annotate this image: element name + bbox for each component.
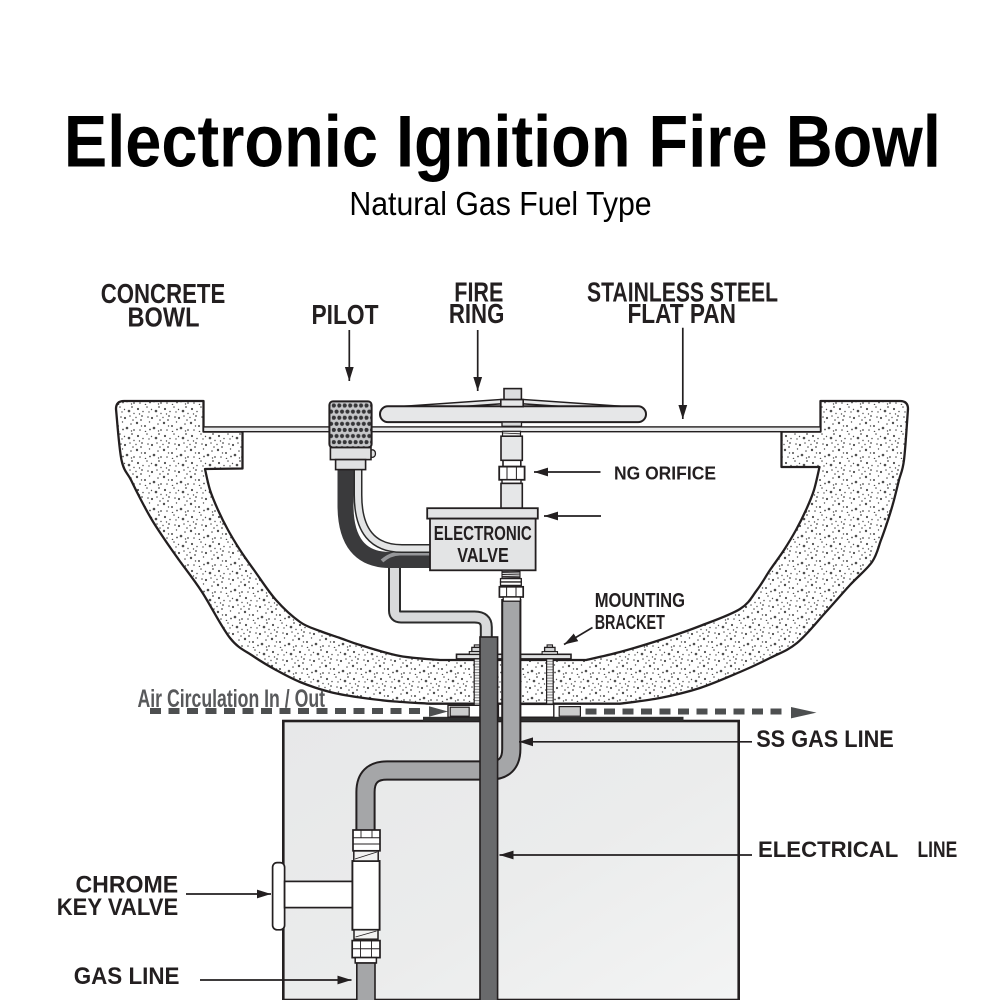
svg-text:FLAT PAN: FLAT PAN <box>627 298 736 329</box>
svg-text:Natural Gas Fuel Type: Natural Gas Fuel Type <box>349 186 651 223</box>
svg-text:Air Circulation In / Out: Air Circulation In / Out <box>138 685 326 713</box>
svg-text:ELECTRONIC: ELECTRONIC <box>434 522 532 545</box>
svg-text:LINE: LINE <box>918 837 958 862</box>
svg-text:NG ORIFICE: NG ORIFICE <box>614 464 716 484</box>
svg-text:ELECTRICAL: ELECTRICAL <box>758 837 899 862</box>
svg-text:GAS LINE: GAS LINE <box>74 963 180 990</box>
svg-text:BOWL: BOWL <box>128 301 200 332</box>
svg-text:PILOT: PILOT <box>312 299 379 330</box>
svg-text:BRACKET: BRACKET <box>595 611 666 634</box>
svg-text:VALVE: VALVE <box>457 544 509 567</box>
svg-text:MOUNTING: MOUNTING <box>595 589 685 612</box>
svg-text:SS GAS LINE: SS GAS LINE <box>756 726 894 753</box>
svg-text:RING: RING <box>449 298 505 329</box>
svg-text:KEY VALVE: KEY VALVE <box>57 894 179 921</box>
svg-text:Electronic Ignition Fire Bowl: Electronic Ignition Fire Bowl <box>64 102 941 183</box>
